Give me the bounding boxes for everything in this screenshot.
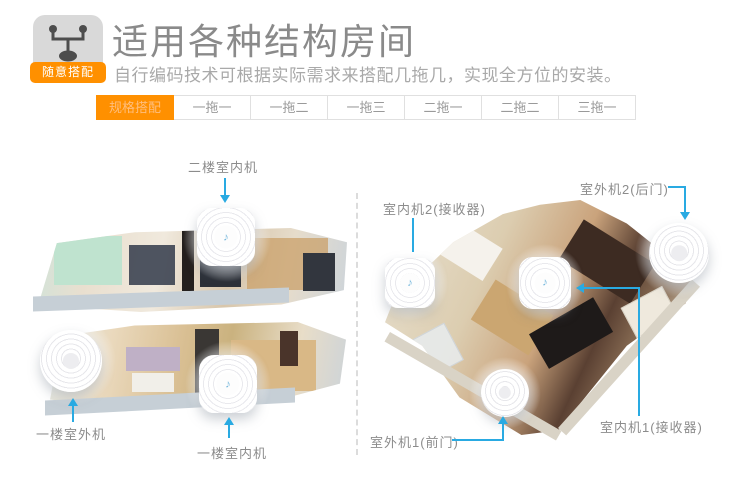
leader-line	[638, 287, 640, 416]
badge-label: 随意搭配	[30, 62, 106, 83]
callout-outdoor-2: 室外机2(后门)	[580, 179, 669, 198]
callout-floor2-indoor: 二楼室内机	[188, 157, 258, 176]
leader-line	[502, 424, 504, 441]
arrow-up-icon	[498, 416, 508, 424]
callout-floor1-indoor: 一楼室内机	[197, 443, 267, 462]
tab-2-to-1[interactable]: 二拖一	[404, 95, 482, 120]
leader-line	[412, 218, 414, 252]
indoor-unit-1: ♪	[519, 257, 571, 309]
tab-spec-match[interactable]: 规格搭配	[96, 95, 174, 120]
doorbell-button-icon	[499, 387, 511, 399]
dashed-divider	[356, 193, 358, 455]
indoor-unit-floor2: ♪	[197, 208, 255, 266]
tab-1-to-2[interactable]: 一拖二	[250, 95, 328, 120]
music-note-icon: ♪	[214, 225, 237, 248]
tab-1-to-3[interactable]: 一拖三	[327, 95, 405, 120]
music-note-icon: ♪	[216, 372, 239, 395]
indoor-unit-2: ♪	[385, 258, 435, 308]
spec-tabs: 规格搭配 一拖一 一拖二 一拖三 二拖一 二拖二 三拖一	[96, 95, 636, 120]
leader-line	[684, 186, 686, 212]
tab-1-to-1[interactable]: 一拖一	[173, 95, 251, 120]
callout-floor1-outdoor: 一楼室外机	[36, 424, 106, 443]
leader-line	[228, 424, 230, 438]
promo-banner: 随意搭配 适用各种结构房间 自行编码技术可根据实际需求来搭配几拖几，实现全方位的…	[0, 0, 750, 499]
tab-2-to-2[interactable]: 二拖二	[481, 95, 559, 120]
leader-line	[584, 287, 640, 289]
arrow-down-icon	[220, 195, 230, 203]
tab-3-to-1[interactable]: 三拖一	[558, 95, 636, 120]
section-subtitle: 自行编码技术可根据实际需求来搭配几拖几，实现全方位的安装。	[114, 61, 622, 86]
callout-indoor-2: 室内机2(接收器)	[383, 199, 486, 218]
music-note-icon: ♪	[535, 273, 556, 294]
arrow-left-icon	[576, 283, 584, 293]
leader-line	[224, 178, 226, 195]
outdoor-unit-1	[481, 369, 529, 417]
doorbell-button-icon	[63, 353, 79, 369]
music-note-icon: ♪	[400, 273, 420, 293]
leader-line	[452, 439, 504, 441]
section-title: 适用各种结构房间	[112, 13, 416, 65]
callout-indoor-1: 室内机1(接收器)	[600, 417, 703, 436]
indoor-unit-floor1: ♪	[199, 355, 257, 413]
outdoor-unit-2	[649, 223, 709, 283]
arrow-down-icon	[680, 212, 690, 220]
doorbell-button-icon	[671, 245, 687, 261]
callout-outdoor-1: 室外机1(前门)	[370, 432, 459, 451]
outdoor-unit-floor1	[40, 330, 102, 392]
leader-line	[72, 405, 74, 422]
